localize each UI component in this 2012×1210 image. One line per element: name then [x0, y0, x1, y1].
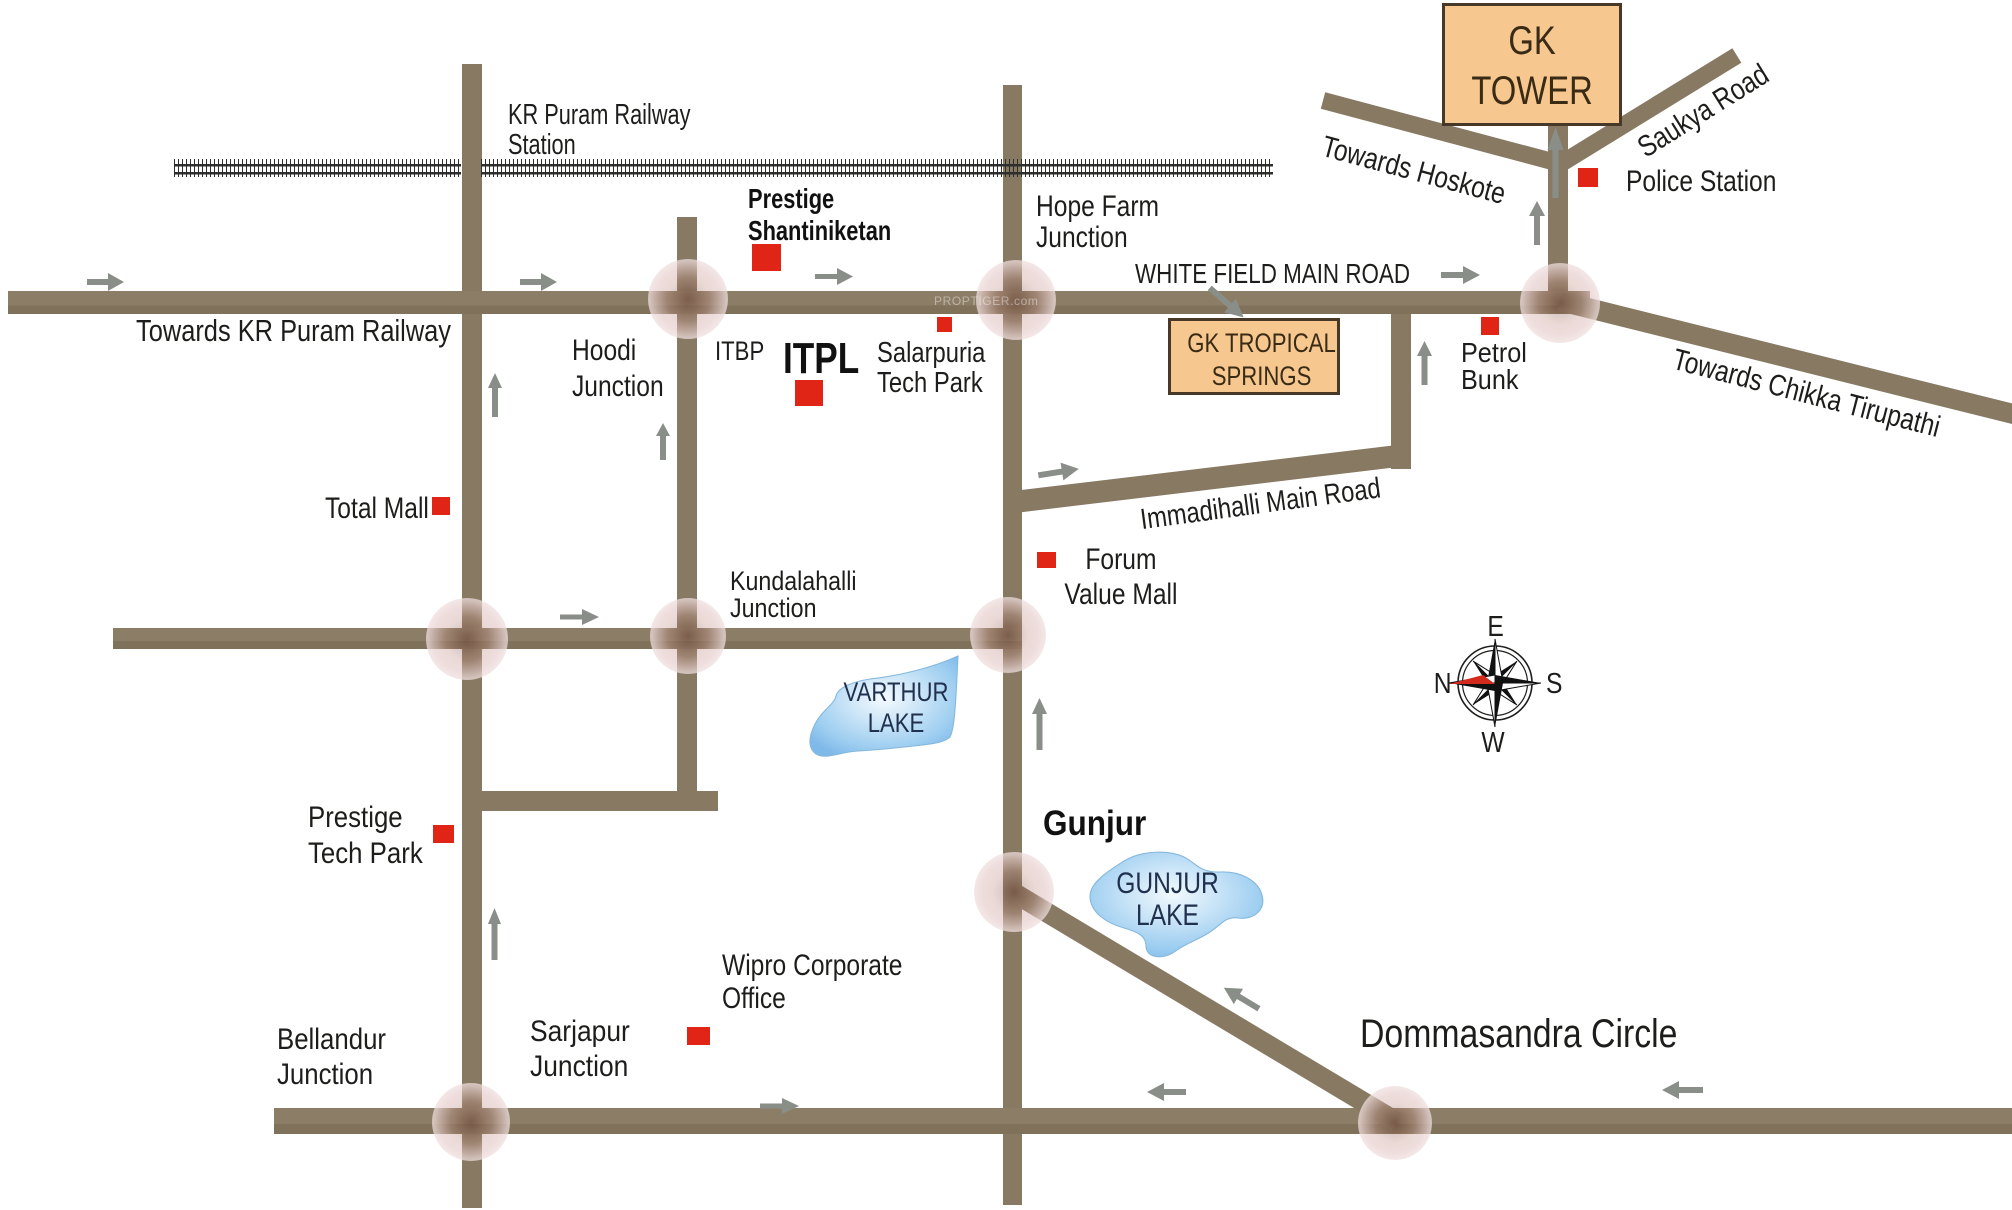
svg-text:W: W [1481, 726, 1505, 758]
svg-text:N: N [1434, 667, 1452, 699]
svg-text:S: S [1546, 667, 1562, 699]
svg-text:E: E [1487, 610, 1503, 642]
